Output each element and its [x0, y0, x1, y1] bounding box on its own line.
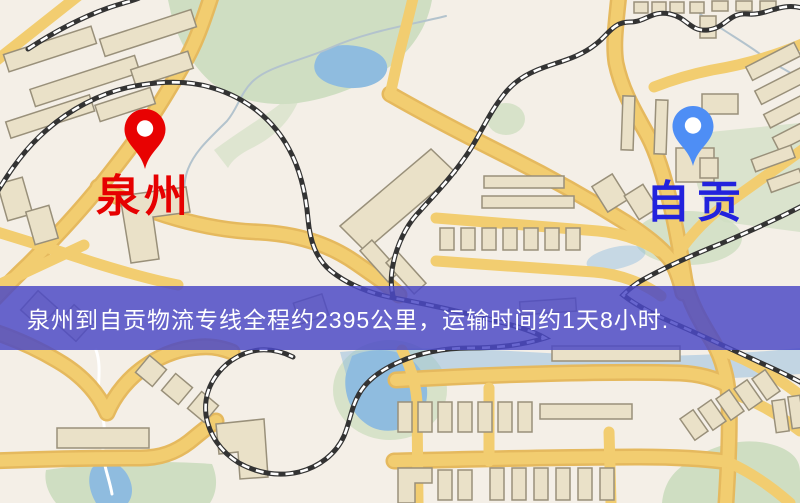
- logistics-route-map: 泉州 自贡 泉州到自贡物流专线全程约2395公里，运输时间约1天8小时.: [0, 0, 800, 503]
- map-background: [0, 0, 800, 503]
- destination-pin-icon: [670, 105, 716, 167]
- destination-label: 自贡: [646, 180, 748, 226]
- destination-marker: [670, 105, 716, 167]
- banner-text: 泉州到自贡物流专线全程约2395公里，运输时间约1天8小时.: [0, 301, 669, 335]
- origin-marker: [122, 108, 168, 170]
- origin-label: 泉州: [96, 174, 192, 220]
- route-info-banner: 泉州到自贡物流专线全程约2395公里，运输时间约1天8小时.: [0, 286, 800, 350]
- origin-pin-icon: [122, 108, 168, 170]
